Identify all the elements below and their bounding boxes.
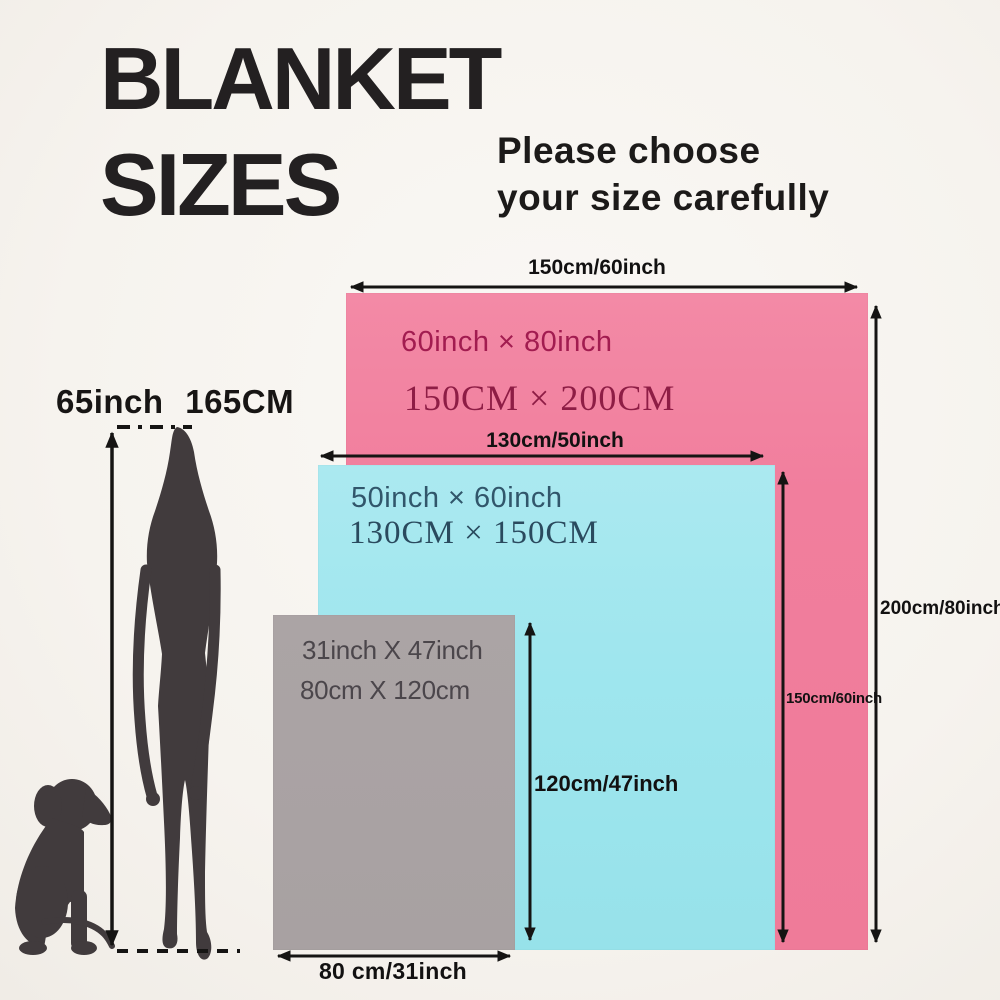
label-small-height: 120cm/47inch [534, 771, 678, 797]
label-large-height: 200cm/80inch [880, 598, 1000, 620]
label-large-width: 150cm/60inch [517, 256, 677, 280]
blanket-size-infographic: BLANKETSIZES Please chooseyour size care… [0, 0, 1000, 1000]
label-small-width: 80 cm/31inch [298, 958, 488, 985]
dimension-arrows [0, 0, 1000, 1000]
label-medium-width: 130cm/50inch [475, 429, 635, 453]
label-medium-height: 150cm/60inch [786, 690, 882, 707]
